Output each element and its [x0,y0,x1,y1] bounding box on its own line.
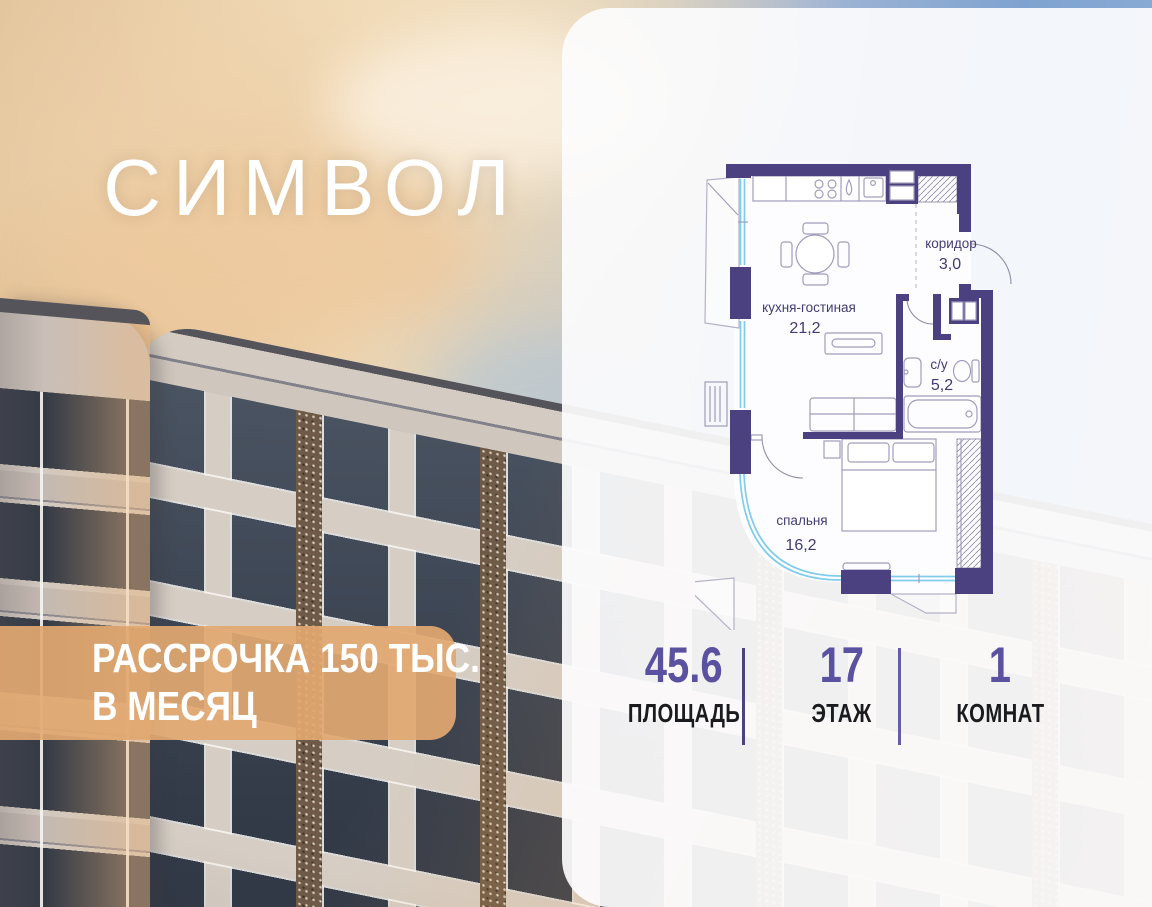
building-left-tower [0,298,150,907]
stats-divider [898,648,901,745]
poster: СИМВОЛ РАССРОЧКА 150 ТЫС. В МЕСЯЦ [0,0,1152,907]
stat-area-label: ПЛОЩАДЬ [628,700,740,726]
room-corridor-area: 3,0 [939,256,961,273]
stat-rooms-value: 1 [989,640,1011,690]
room-bedroom-label: спальня [776,513,827,528]
stat-floor-value: 17 [820,640,865,690]
room-bathroom-label: с/у [930,357,948,372]
promo-line2: В МЕСЯЦ [92,683,405,731]
promo-banner: РАССРОЧКА 150 ТЫС. В МЕСЯЦ [0,626,456,740]
stats-divider [742,648,745,745]
stat-floor-label: ЭТАЖ [812,700,872,726]
stat-rooms-label: КОМНАТ [956,700,1044,726]
sunlight-overlay [0,298,150,907]
stats-row: 45.6 ПЛОЩАДЬ 17 ЭТАЖ 1 КОМНАТ [605,640,1079,727]
brand-logo: СИМВОЛ [55,148,570,228]
stat-area: 45.6 ПЛОЩАДЬ [605,640,763,727]
info-panel: кухня-гостиная 21,2 коридор 3,0 с/у 5,2 … [562,8,1152,907]
ac-unit [705,382,727,426]
room-kitchen-living-label: кухня-гостиная [762,300,856,315]
kitchen-fixtures [753,176,886,201]
room-bedroom-area: 16,2 [785,537,816,554]
room-kitchen-living-area: 21,2 [789,320,820,337]
room-corridor-label: коридор [925,236,977,251]
room-bathroom-area: 5,2 [931,377,953,394]
stat-area-value: 45.6 [645,640,723,690]
stat-rooms: 1 КОМНАТ [921,640,1079,727]
promo-line1: РАССРОЧКА 150 ТЫС. [92,635,405,683]
floor-plan: кухня-гостиная 21,2 коридор 3,0 с/у 5,2 … [695,152,1015,630]
